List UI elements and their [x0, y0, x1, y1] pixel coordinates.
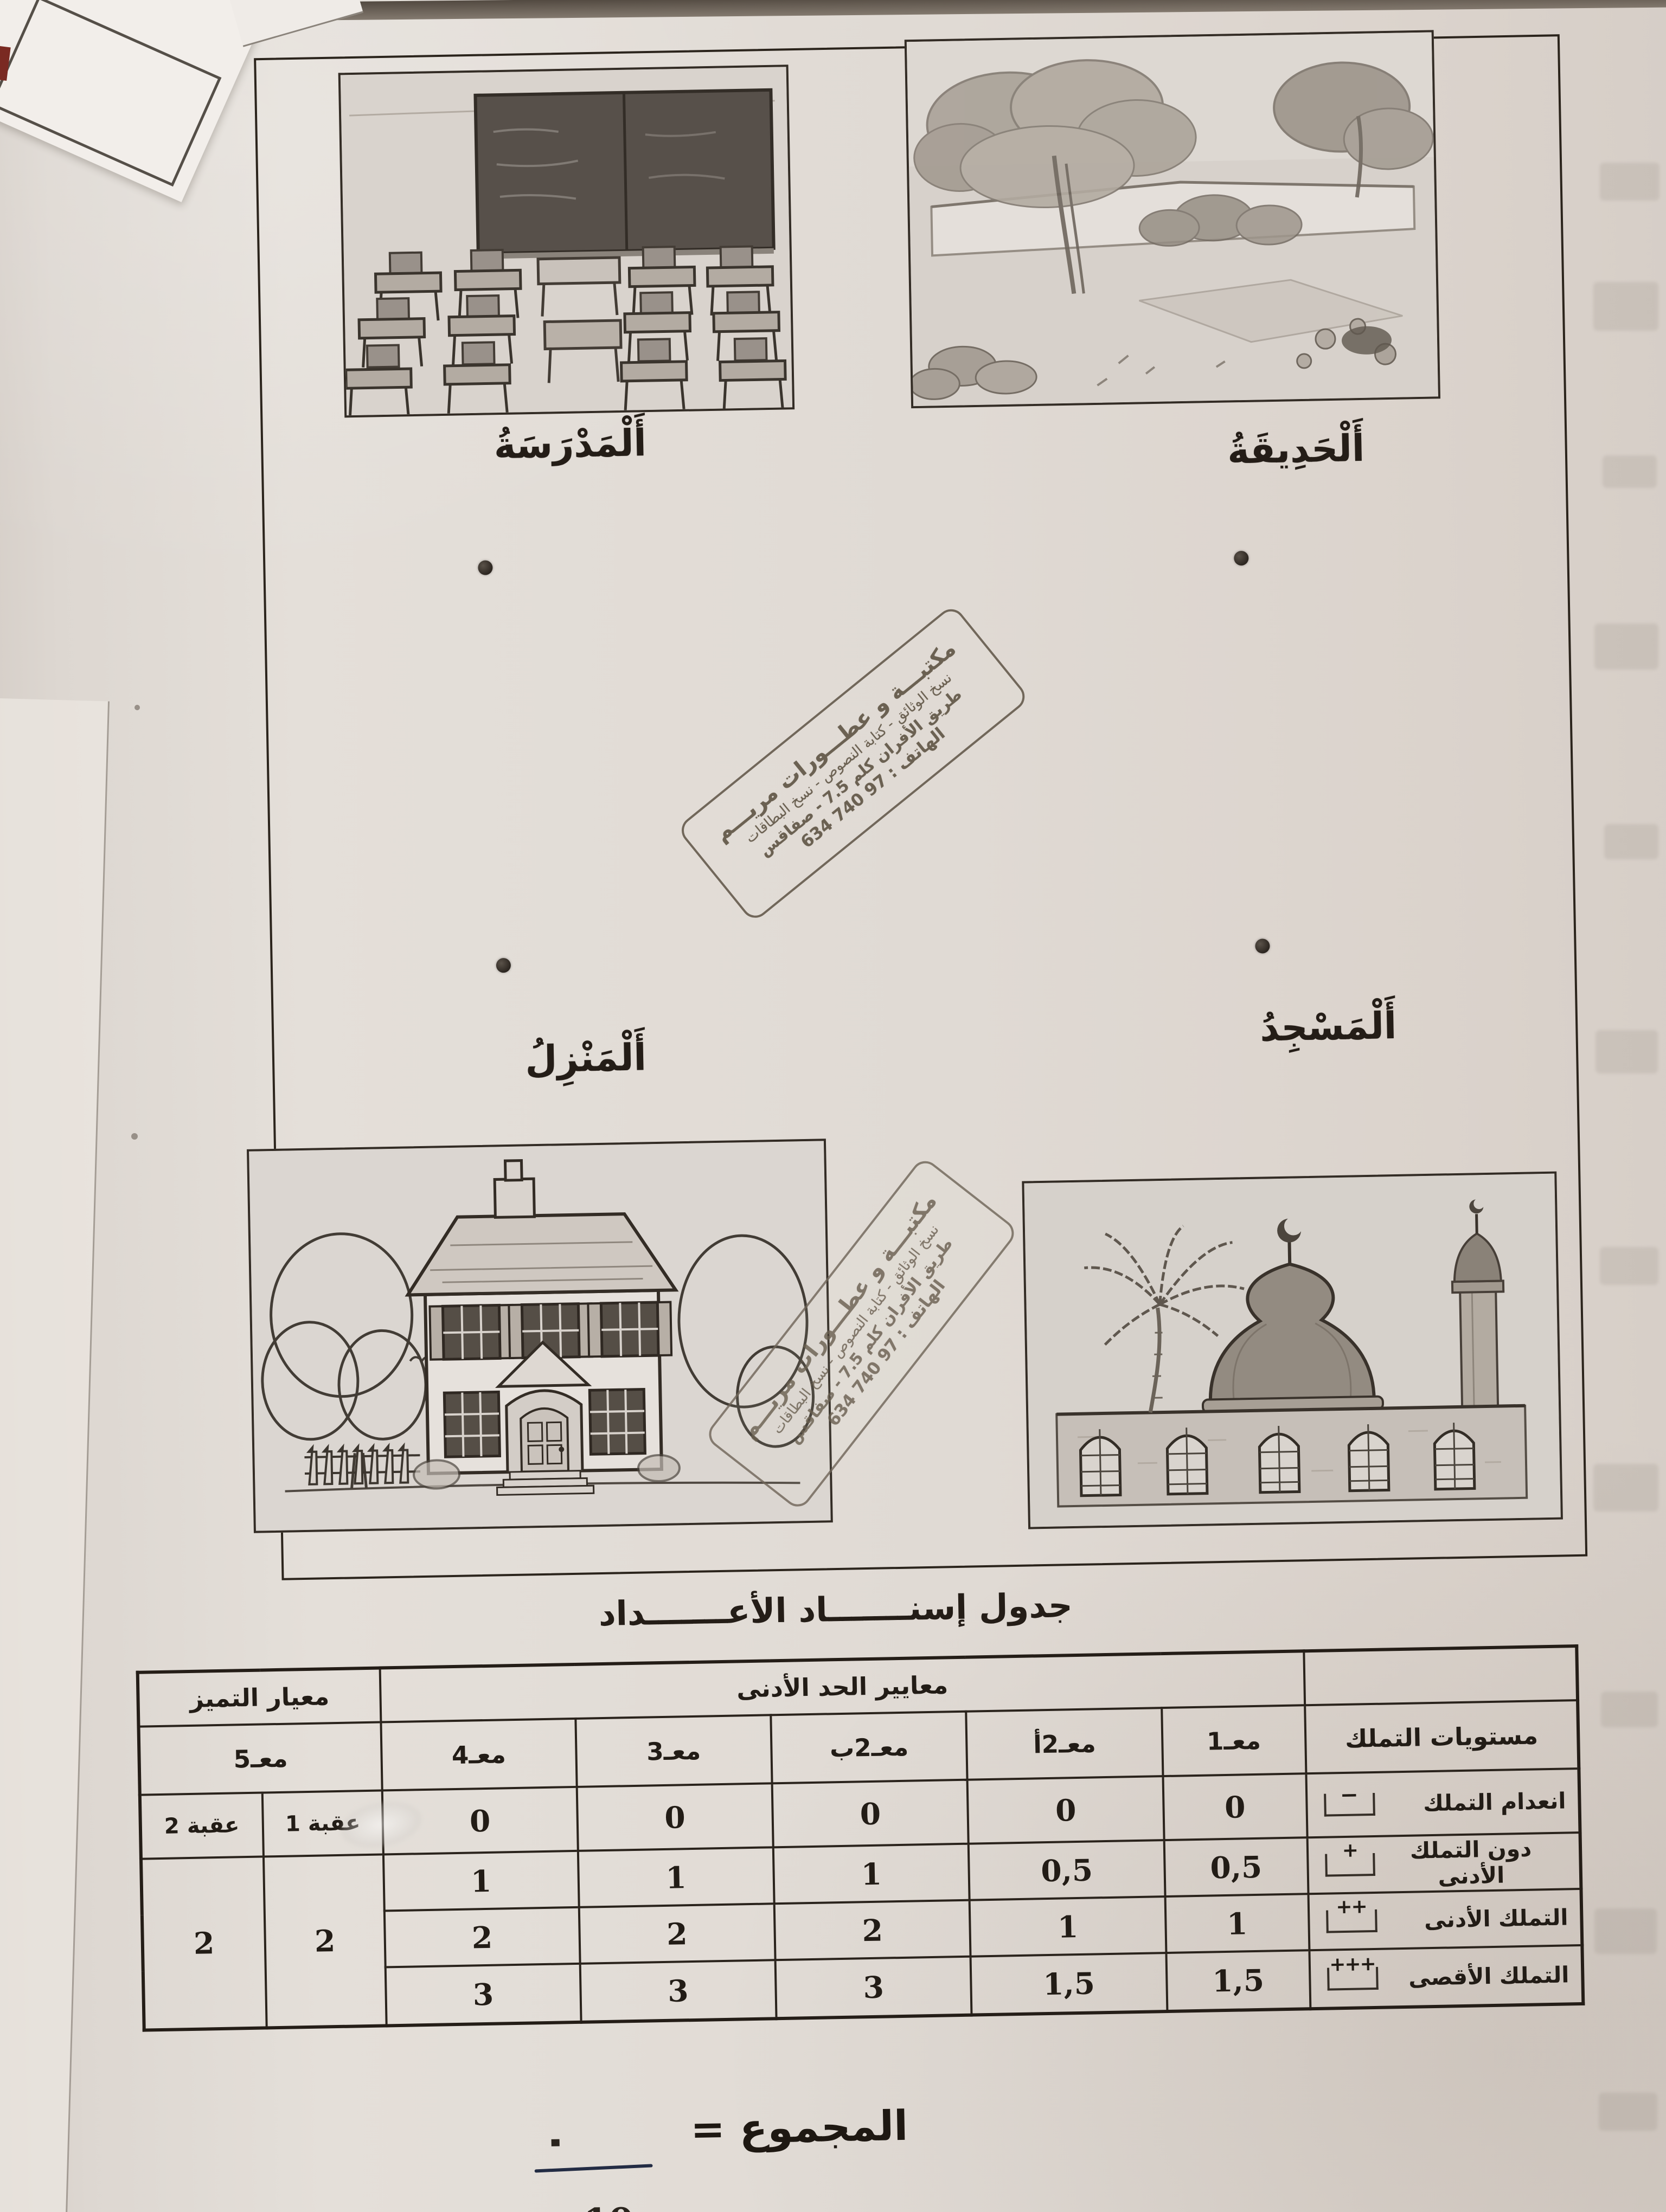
- paper-rotation-wrapper: أَلْمَدْرَسَةُ أَلْحَدِيقَةُ مكتبـــة و …: [0, 0, 1666, 2212]
- cell-r1-m4: 1: [383, 1851, 579, 1911]
- bleedthrough-mark: [1593, 282, 1658, 331]
- row-label-text: التملك الأدنى: [1424, 1904, 1568, 1933]
- cell-r1-m3: 1: [578, 1847, 774, 1907]
- cell-r1-m2a: 0,5: [969, 1840, 1165, 1900]
- bleedthrough-mark: [1593, 1464, 1658, 1512]
- cell-r0-m1: 0: [1163, 1773, 1307, 1840]
- obstacle1-value: 2: [264, 1854, 387, 2028]
- mosque-sketch: [1024, 1174, 1560, 1527]
- bleedthrough-mark: [1600, 1247, 1658, 1285]
- garden-caption: أَلْحَدِيقَةُ: [1127, 426, 1464, 474]
- house-caption: أَلْمَنْزِلُ: [417, 1034, 754, 1083]
- symbol-none: ــ: [1324, 1793, 1375, 1817]
- symbol-plus-plus-plus: +++: [1327, 1966, 1379, 1990]
- cell-r2-m2b: 2: [774, 1900, 971, 1960]
- cell-r1-m2b: 1: [773, 1844, 970, 1904]
- bleedthrough-mark: [1600, 163, 1659, 201]
- cell-r0-m2b: 0: [772, 1780, 969, 1848]
- bleedthrough-mark: [1599, 2093, 1657, 2131]
- col-header-m4: معـ4: [381, 1719, 577, 1791]
- bleedthrough-mark: [1595, 1030, 1658, 1073]
- cell-r2-m2a: 1: [970, 1896, 1166, 1957]
- house-sketch: [249, 1141, 831, 1531]
- col-header-m2b: معـ2ب: [771, 1712, 967, 1784]
- obstacle2-header: عقبة 2: [140, 1793, 264, 1859]
- row-label-text: دون التملك الأدنى: [1375, 1835, 1568, 1890]
- excellence-header: معيار التميز: [138, 1668, 381, 1727]
- row-label-text: انعدام التملك: [1423, 1787, 1566, 1816]
- row-label-text: التملك الأقصى: [1408, 1962, 1569, 1990]
- bleedthrough-mark: [1604, 824, 1658, 859]
- total-label: المجموع =: [690, 2101, 908, 2153]
- blackboard: [475, 90, 773, 259]
- bleedthrough-mark: [1594, 623, 1658, 670]
- mosque-caption: أَلْمَسْجِدُ: [1160, 1003, 1497, 1052]
- ink-speck: [131, 1133, 138, 1140]
- photographed-worksheet: أَلْمَدْرَسَةُ أَلْحَدِيقَةُ مكتبـــة و …: [0, 0, 1666, 2212]
- garden-picture: [905, 30, 1440, 408]
- row-label-none: انعدام التملك ــ: [1306, 1769, 1580, 1837]
- levels-header: مستويات التملك: [1305, 1700, 1579, 1773]
- row-label-max: التملك الأقصى +++: [1309, 1945, 1583, 2009]
- cell-r3-m2b: 3: [776, 1957, 972, 2019]
- symbol-plus: +: [1325, 1853, 1375, 1877]
- cell-r3-m2a: 1,5: [971, 1953, 1167, 2015]
- cell-empty-corner: [1304, 1646, 1578, 1705]
- obstacle2-value: 2: [141, 1857, 266, 2030]
- bleedthrough-mark: [1594, 1908, 1657, 1954]
- symbol-plus-plus: ++: [1326, 1909, 1377, 1933]
- cell-r2-m4: 2: [385, 1907, 580, 1967]
- cell-r3-m1: 1,5: [1166, 1950, 1310, 2011]
- bleedthrough-mark: [1603, 455, 1657, 488]
- cell-r3-m4: 3: [386, 1964, 581, 2026]
- col-header-m3: معـ3: [575, 1715, 772, 1787]
- house-picture: [247, 1139, 833, 1533]
- school-caption: أَلْمَدْرَسَةُ: [402, 420, 739, 469]
- row-label-below-min: دون التملك الأدنى +: [1307, 1832, 1581, 1894]
- cell-r3-m3: 3: [580, 1960, 776, 2022]
- cell-r0-m2a: 0: [967, 1776, 1164, 1844]
- col-header-m2a: معـ2أ: [966, 1708, 1163, 1780]
- row-label-min: التملك الأدنى ++: [1308, 1889, 1582, 1950]
- classroom-picture: [338, 65, 795, 417]
- total-numerator-mark: [552, 2139, 560, 2146]
- bleedthrough-mark: [1601, 1692, 1658, 1727]
- ink-speck: [134, 705, 140, 710]
- col-header-m1: معـ1: [1162, 1705, 1306, 1776]
- garden-sketch: [907, 32, 1438, 406]
- cell-r2-m1: 1: [1165, 1894, 1309, 1953]
- cell-r1-m1: 0,5: [1164, 1837, 1308, 1896]
- total-denominator: 10: [584, 2200, 634, 2212]
- col-header-m5: معـ5: [138, 1722, 382, 1795]
- classroom-sketch: [341, 67, 792, 415]
- cell-r0-m3: 0: [576, 1783, 773, 1851]
- mosque-picture: [1022, 1172, 1563, 1529]
- cell-r2-m3: 2: [579, 1904, 775, 1964]
